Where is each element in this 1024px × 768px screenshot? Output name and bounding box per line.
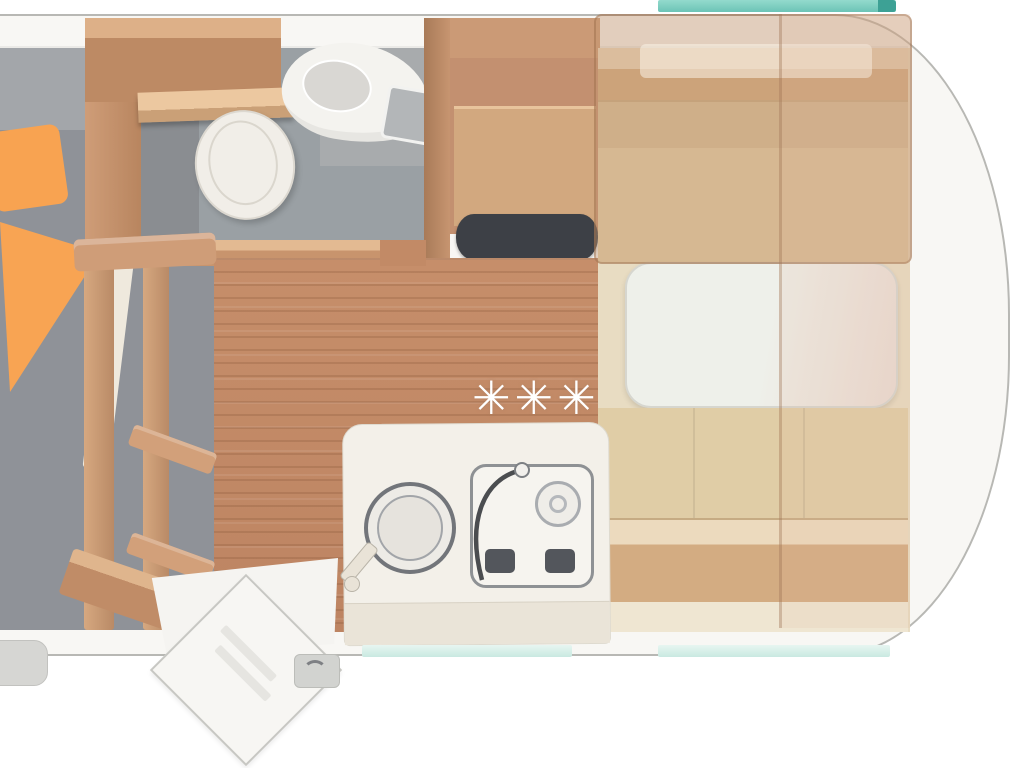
awning-rail-end — [878, 0, 896, 12]
star-icon: ✳ — [515, 372, 554, 428]
burner-ring — [535, 481, 581, 527]
kitchen-unit-top — [450, 18, 600, 58]
star-icon: ✳ — [557, 372, 596, 428]
burner-grate — [545, 549, 575, 573]
heater-star-markers: ✳ ✳ ✳ — [472, 372, 612, 428]
star-icon: ✳ — [472, 372, 511, 428]
awning-rail-teal — [658, 0, 896, 12]
entry-step-detail — [303, 660, 327, 682]
roof-outline-overlay — [779, 14, 910, 628]
bathroom-doorway-floor — [380, 240, 426, 266]
entry-step — [294, 654, 340, 688]
kitchen-cabinet-front — [345, 601, 610, 645]
burner-center — [549, 495, 567, 513]
tall-faucet-arc — [458, 458, 538, 590]
caravan-floor-plan: ✳ ✳ ✳ — [0, 0, 1024, 768]
kitchen-unit-shelf — [454, 106, 596, 226]
wardrobe-top-face — [85, 18, 281, 38]
bed-headboard-shelf — [0, 48, 85, 130]
dark-worktop — [456, 214, 598, 260]
sink-faucet-base — [344, 576, 360, 592]
partition-wall — [424, 18, 450, 264]
cushion-seam — [693, 408, 695, 518]
window-strip — [658, 645, 890, 657]
toilet-seat-ring — [201, 115, 284, 211]
kitchen-sink-bowl — [377, 495, 443, 561]
window-strip — [362, 645, 572, 657]
exterior-step — [0, 640, 48, 686]
kitchen-tall-unit — [450, 18, 600, 234]
orange-pillow — [0, 123, 69, 213]
